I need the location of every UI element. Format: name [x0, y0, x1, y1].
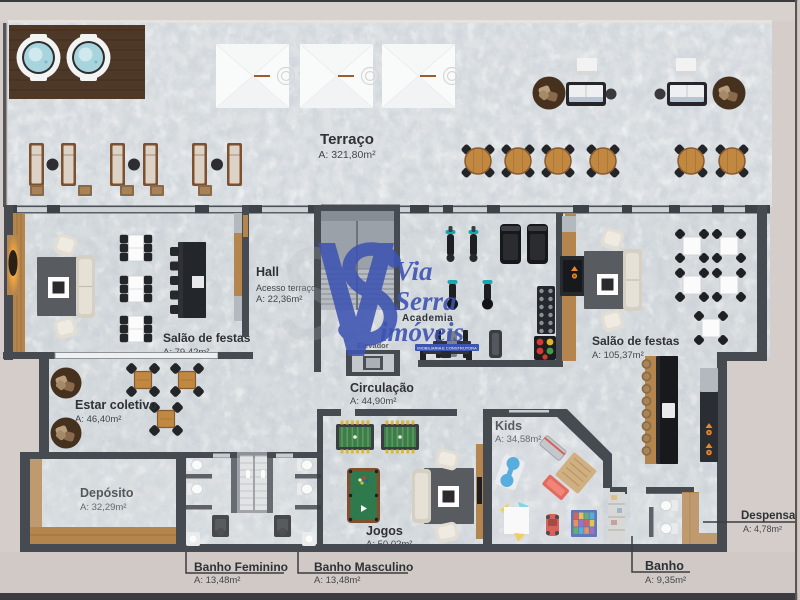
svg-text:A: 13,48m²: A: 13,48m²: [314, 575, 360, 586]
svg-text:A: 46,40m²: A: 46,40m²: [75, 414, 121, 425]
svg-text:Serra: Serra: [395, 286, 457, 316]
svg-text:Circulação: Circulação: [350, 381, 414, 395]
svg-text:Hall: Hall: [256, 265, 279, 279]
svg-text:Estar coletivo: Estar coletivo: [75, 398, 157, 412]
svg-text:A: 13,48m²: A: 13,48m²: [194, 575, 240, 586]
svg-text:Terraço: Terraço: [320, 131, 374, 148]
svg-text:Salão de festas: Salão de festas: [592, 334, 680, 348]
svg-text:A: 4,78m²: A: 4,78m²: [743, 524, 782, 534]
svg-text:IMOBILIARIA E CONSTRUTORA: IMOBILIARIA E CONSTRUTORA: [417, 346, 477, 351]
svg-text:A: 50,02m²: A: 50,02m²: [366, 539, 412, 550]
svg-text:A: 22,36m²: A: 22,36m²: [256, 294, 302, 305]
svg-text:Banho Feminino: Banho Feminino: [194, 560, 288, 574]
svg-text:A: 9,35m²: A: 9,35m²: [645, 575, 686, 586]
svg-text:imóveis: imóveis: [380, 317, 464, 347]
svg-text:Jogos: Jogos: [366, 524, 403, 538]
svg-text:Banho: Banho: [645, 559, 684, 573]
svg-text:A: 105,37m²: A: 105,37m²: [592, 350, 644, 361]
svg-text:A: 321,80m²: A: 321,80m²: [318, 149, 376, 161]
svg-text:Via: Via: [395, 256, 433, 286]
svg-text:Salão de festas: Salão de festas: [163, 331, 251, 345]
svg-text:Banho Masculino: Banho Masculino: [314, 560, 413, 574]
svg-text:A: 44,90m²: A: 44,90m²: [350, 396, 396, 407]
svg-text:Despensa: Despensa: [741, 510, 796, 522]
